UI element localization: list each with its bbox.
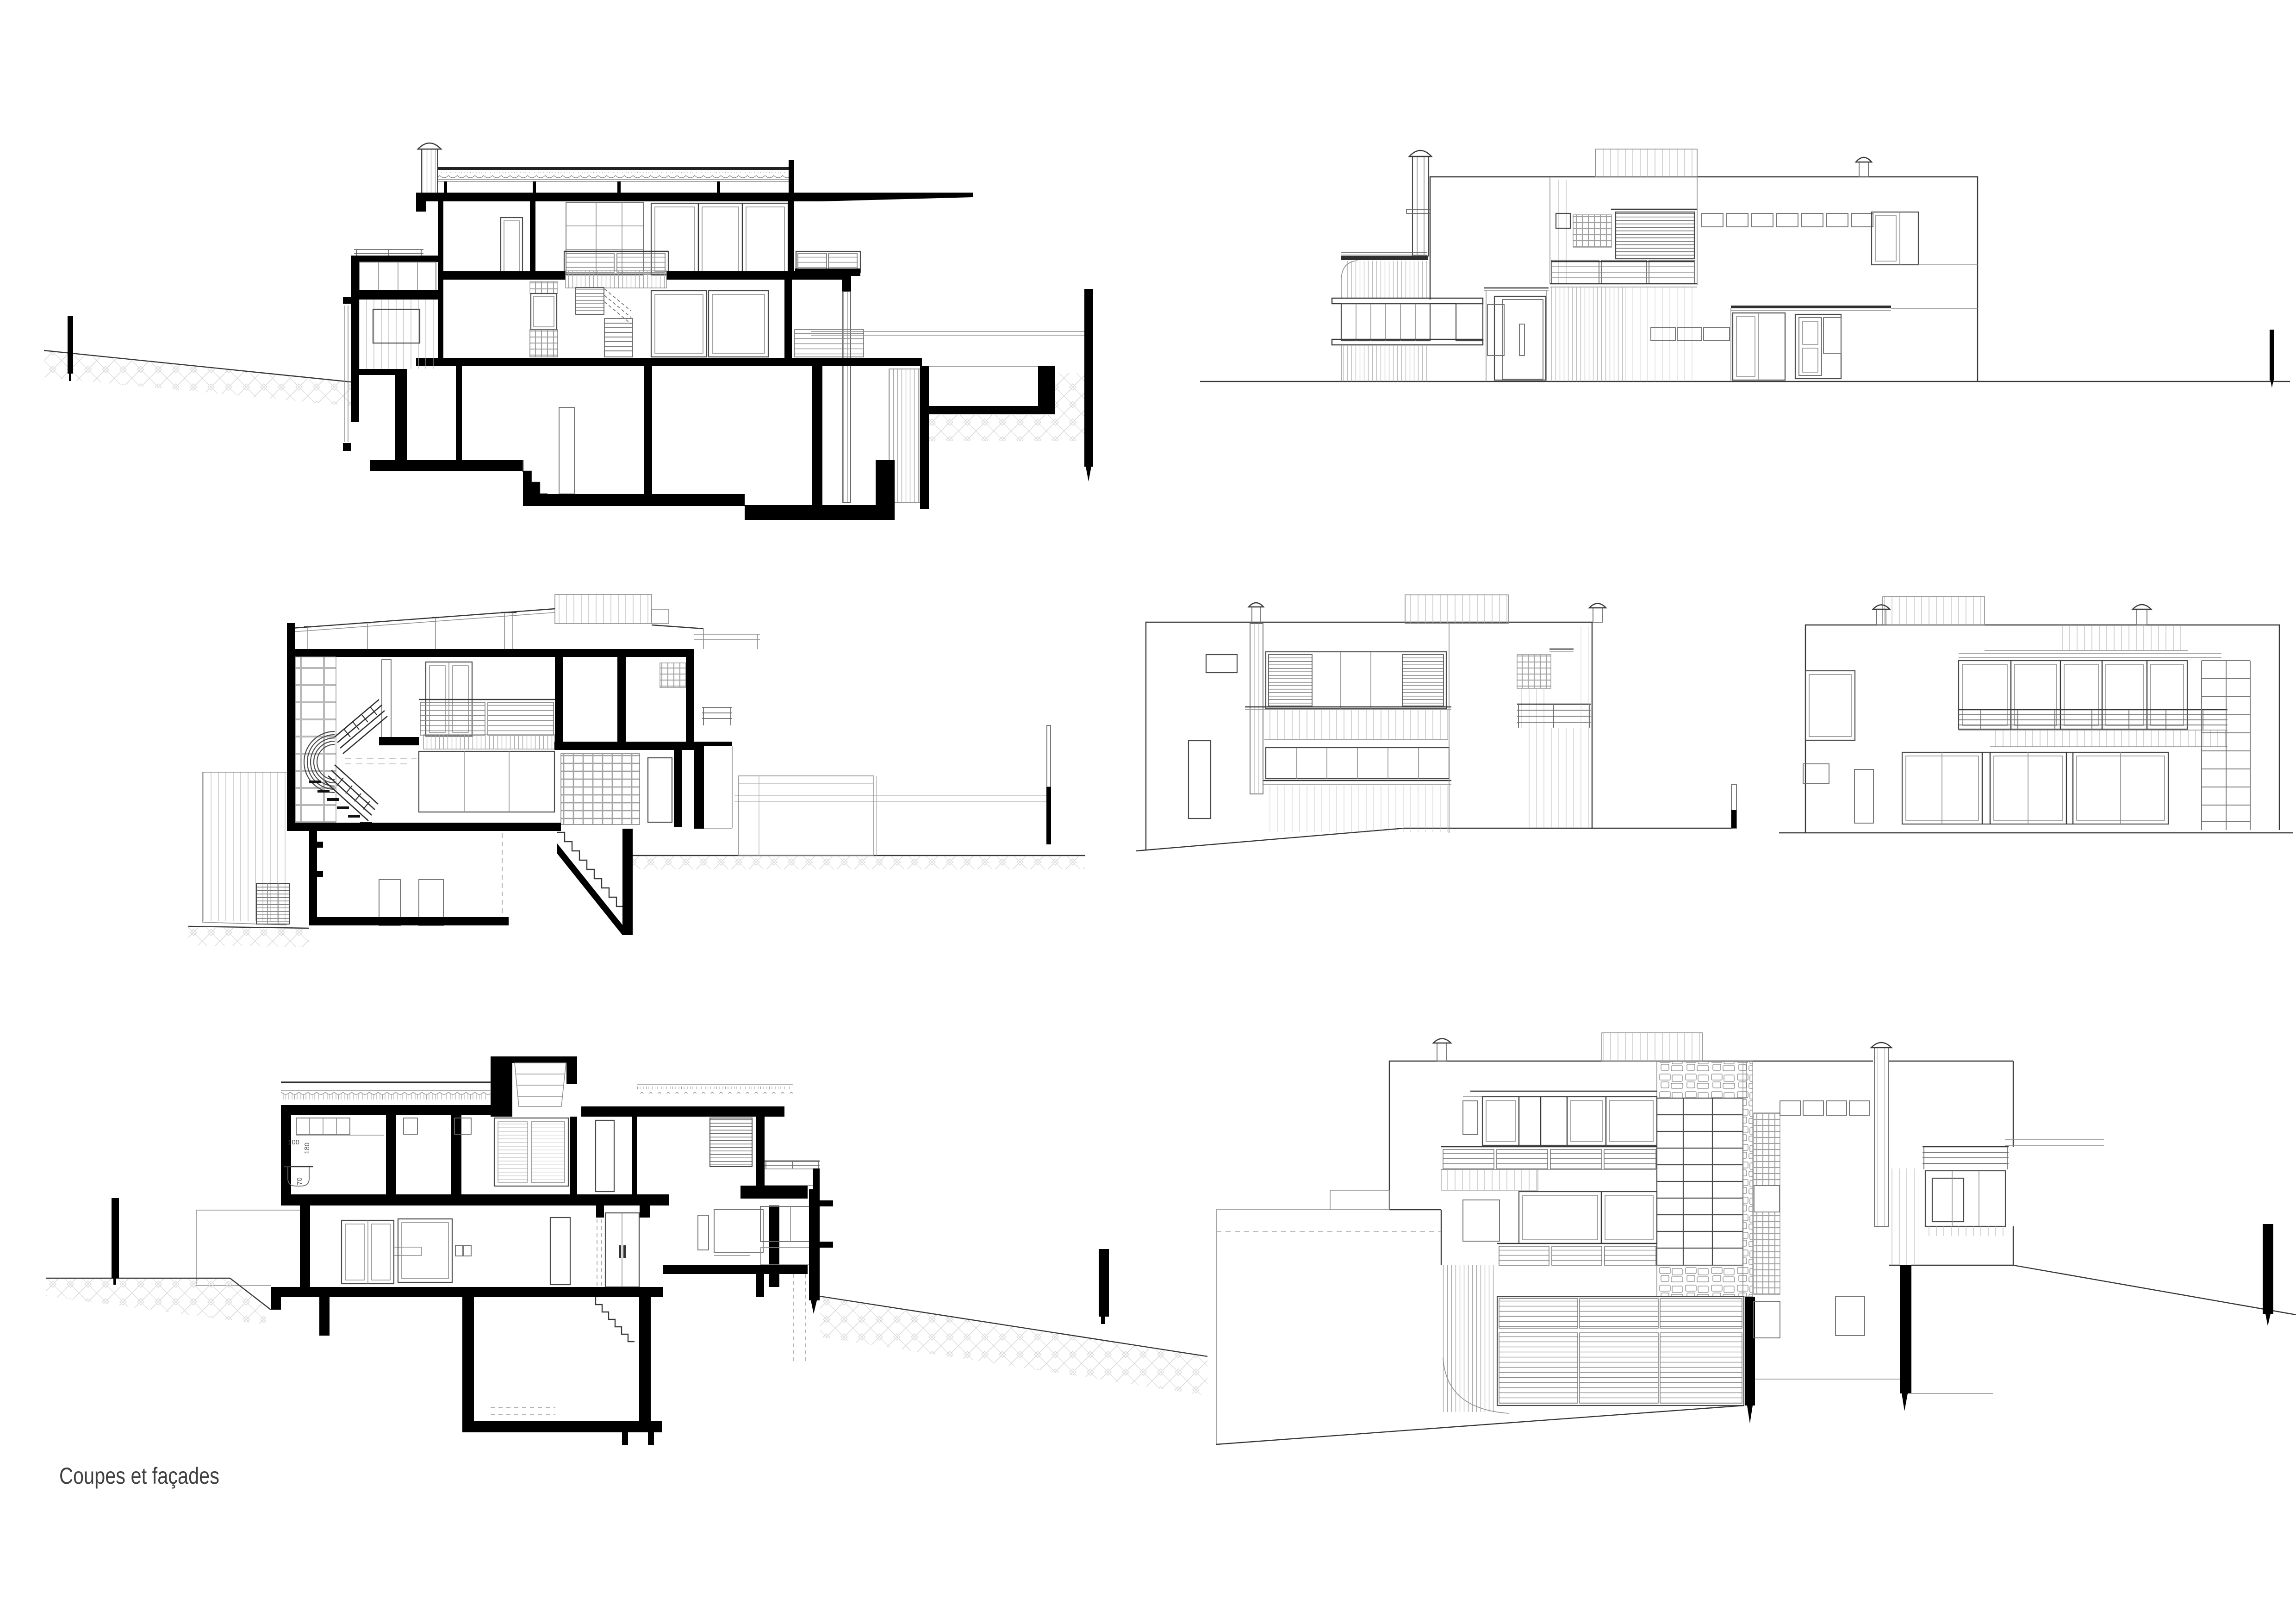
svg-text:70: 70: [296, 1177, 304, 1185]
svg-text:100: 100: [288, 1138, 299, 1146]
svg-text:180: 180: [303, 1143, 311, 1154]
svg-text:Coupes et façades: Coupes et façades: [59, 1463, 219, 1489]
